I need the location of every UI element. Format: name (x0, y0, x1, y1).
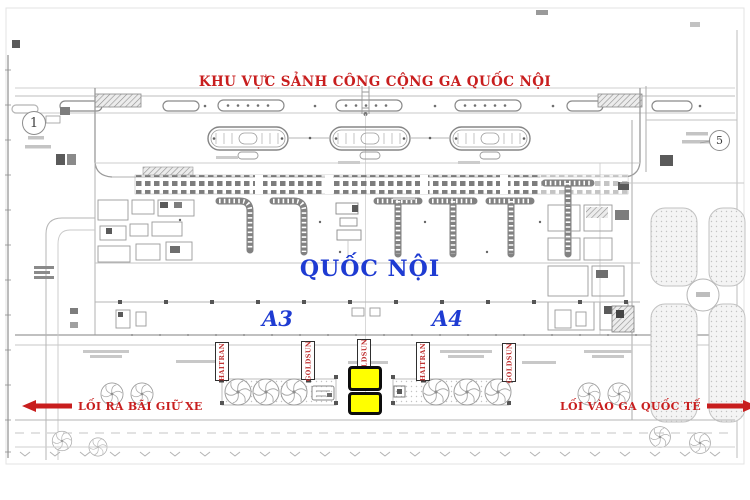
ad-panel-label: HAITRAN (218, 342, 226, 380)
highlight-position-1[interactable] (348, 366, 382, 391)
plan-badge-5: 5 (709, 130, 730, 151)
right-arrow-icon (707, 399, 750, 413)
ad-panel-haitran-2[interactable]: HAITRAN (416, 342, 430, 381)
floorplan-canvas: KHU VỰC SẢNH CÔNG CỘNG GA QUỐC NỘI QUỐC … (0, 0, 750, 500)
ad-panel-label: GOLDSUN (505, 342, 513, 383)
ad-panel-label: GOLDSUN (304, 340, 312, 381)
highlight-position-2[interactable] (348, 392, 382, 415)
plan-badge-5-number: 5 (716, 134, 723, 147)
plan-badge-1: 1 (22, 111, 46, 135)
ad-panel-haitran-1[interactable]: HAITRAN (215, 342, 229, 381)
ad-panel-goldsun-1[interactable]: GOLDSUN (301, 341, 315, 380)
exit-parking: LỐI RA BÃI GIỮ XE (20, 399, 203, 413)
entrance-international: LỐI VÀO GA QUỐC TẾ (560, 399, 750, 413)
ad-panel-label: HAITRAN (419, 342, 427, 380)
zone-label-a4: A4 (432, 306, 463, 331)
zone-label-domestic: QUỐC NỘI (280, 256, 460, 282)
zone-label-a3: A3 (262, 306, 293, 331)
exit-parking-label: LỐI RA BÃI GIỮ XE (78, 400, 203, 413)
plan-badge-1-number: 1 (30, 116, 38, 131)
ad-panel-goldsun-3[interactable]: GOLDSUN (502, 343, 516, 382)
left-arrow-icon (20, 399, 72, 413)
page-title: KHU VỰC SẢNH CÔNG CỘNG GA QUỐC NỘI (0, 74, 750, 90)
entrance-international-label: LỐI VÀO GA QUỐC TẾ (560, 400, 701, 413)
